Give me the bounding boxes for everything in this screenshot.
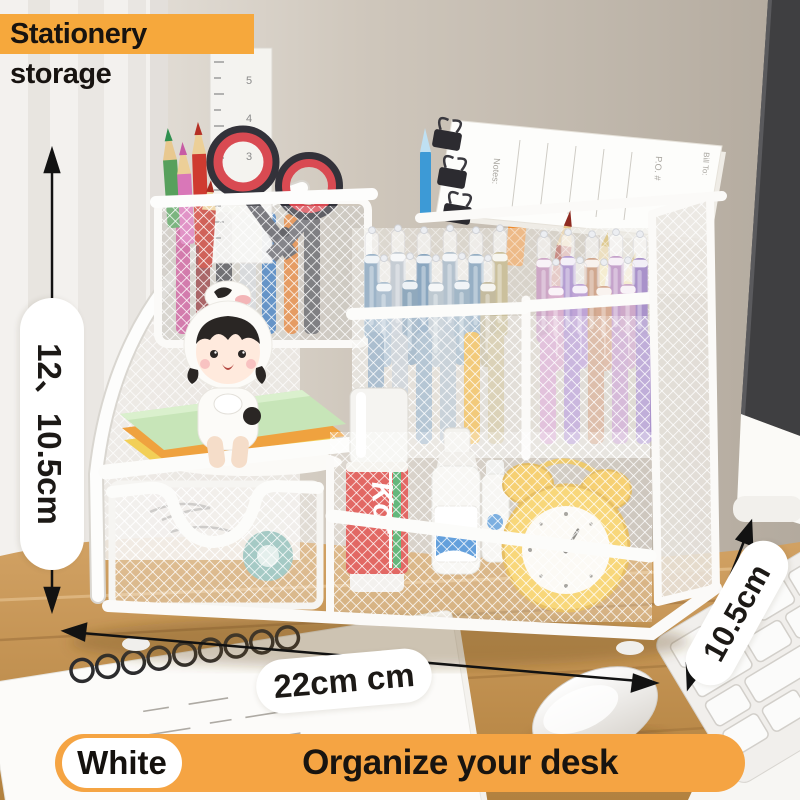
ruler-number: 5: [246, 75, 252, 87]
right-side-panel: [652, 196, 716, 602]
document-label: P.O. #: [652, 156, 664, 181]
color-option-text: White: [77, 744, 167, 782]
height-dimension-text: 12、10.5cm: [28, 343, 76, 525]
product-photo-card: 5 4 3 2: [0, 0, 800, 800]
drawer: [112, 484, 320, 606]
document-label: Bill To:: [700, 152, 711, 176]
banner-label: Stationery storage: [0, 14, 254, 54]
footer-bar: White Organize your desk: [55, 734, 745, 792]
ruler-number: 4: [246, 113, 252, 125]
height-dimension-pill: 12、10.5cm: [20, 298, 84, 570]
footer-slogan: Organize your desk: [187, 734, 733, 792]
color-option-chip: White: [62, 738, 182, 788]
document-label: Notes:: [490, 158, 502, 185]
width-dimension-text: 22cm cm: [272, 656, 416, 706]
ruler-number: 3: [246, 151, 252, 163]
